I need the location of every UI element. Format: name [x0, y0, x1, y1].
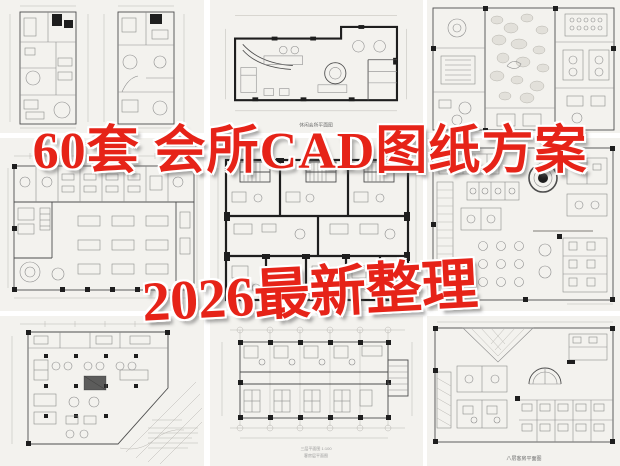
plan-caption: 三层平面图 1:100	[300, 445, 332, 451]
cad-plan-thumbnail-9: 八层客房平面图	[427, 316, 620, 466]
cad-plan-thumbnail-2: 休闲会所平面图	[210, 0, 423, 133]
floor-plan-drawing-icon: 八层客房平面图	[427, 316, 620, 466]
floor-plan-drawing-icon: 休闲会所平面图	[210, 0, 423, 133]
cad-plan-thumbnail-7	[0, 316, 204, 466]
cad-plan-thumbnail-1	[0, 0, 204, 133]
plan-caption: 八层客房平面图	[506, 455, 541, 462]
headline-top: 60套 会所CAD图纸方案	[0, 126, 620, 178]
floor-plan-drawing-icon	[0, 0, 204, 133]
floor-plan-drawing-icon	[427, 0, 620, 133]
cad-drawings-poster: 休闲会所平面图	[0, 0, 620, 466]
cad-plan-thumbnail-8: 三层平面图 1:100 客房层平面图	[210, 316, 423, 466]
floor-plan-drawing-icon: 三层平面图 1:100 客房层平面图	[210, 316, 423, 466]
floor-plan-drawing-icon	[0, 316, 204, 466]
plan-subcaption: 客房层平面图	[304, 452, 328, 458]
cad-plan-thumbnail-3	[427, 0, 620, 133]
